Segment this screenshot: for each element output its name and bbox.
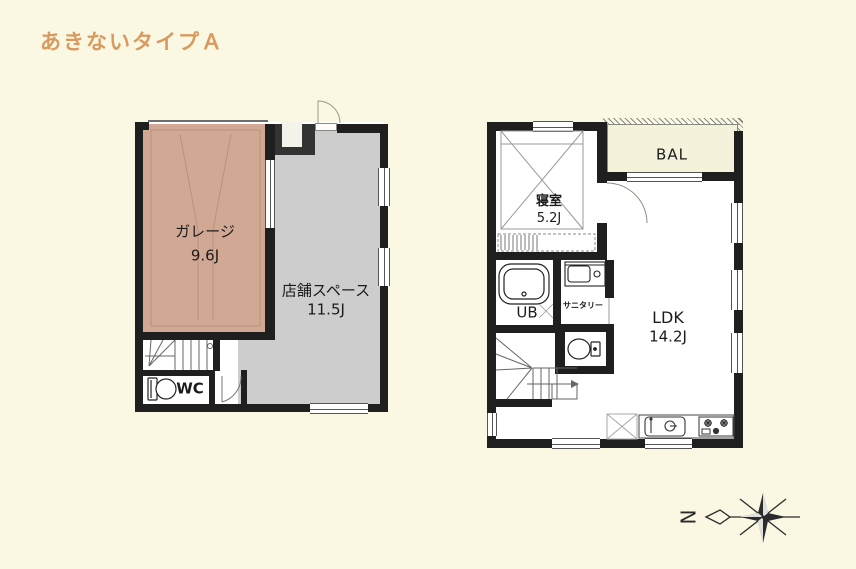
washbasin-icon xyxy=(565,262,605,286)
kitchen-counter xyxy=(639,415,734,438)
balcony-label: BAL xyxy=(656,146,688,165)
compass-north-label: N xyxy=(677,510,701,525)
floor2-linework xyxy=(487,118,743,448)
toilet-icon-2f xyxy=(568,339,600,359)
bathtub-icon xyxy=(499,264,549,304)
bedroom-label: 寝室 xyxy=(536,194,562,210)
shop-label: 店舗スペース xyxy=(282,282,370,301)
page-title: あきないタイプＡ xyxy=(40,26,224,56)
floorplan-2f: 寝室 5.2J BAL UB サニタリー LDK 14.2J xyxy=(487,118,743,448)
compass-icon: N xyxy=(668,487,808,551)
ub-door xyxy=(539,304,553,318)
garage-label: ガレージ xyxy=(175,223,235,242)
sanitary-label: サニタリー xyxy=(563,301,603,311)
fridge-space xyxy=(607,414,637,439)
wc-label: WC xyxy=(176,380,204,399)
floorplan-1f: ガレージ 9.6J 店舗スペース 11.5J WC xyxy=(135,120,388,412)
garage-area: 9.6J xyxy=(191,247,219,266)
stairs-2f xyxy=(496,338,579,399)
toilet-icon xyxy=(148,378,176,400)
bedroom-area: 5.2J xyxy=(537,211,562,227)
bedroom-door-arc xyxy=(607,183,647,223)
ldk-area: 14.2J xyxy=(649,328,687,347)
closet xyxy=(498,234,595,251)
bath-label: UB xyxy=(516,304,537,323)
ldk-label: LDK xyxy=(652,308,684,328)
stairs-1f xyxy=(145,340,213,370)
wc-door-arc xyxy=(222,376,241,402)
floorplan-page: あきないタイプＡ xyxy=(0,0,856,569)
floor1-linework xyxy=(135,90,388,412)
shop-area: 11.5J xyxy=(307,301,345,320)
